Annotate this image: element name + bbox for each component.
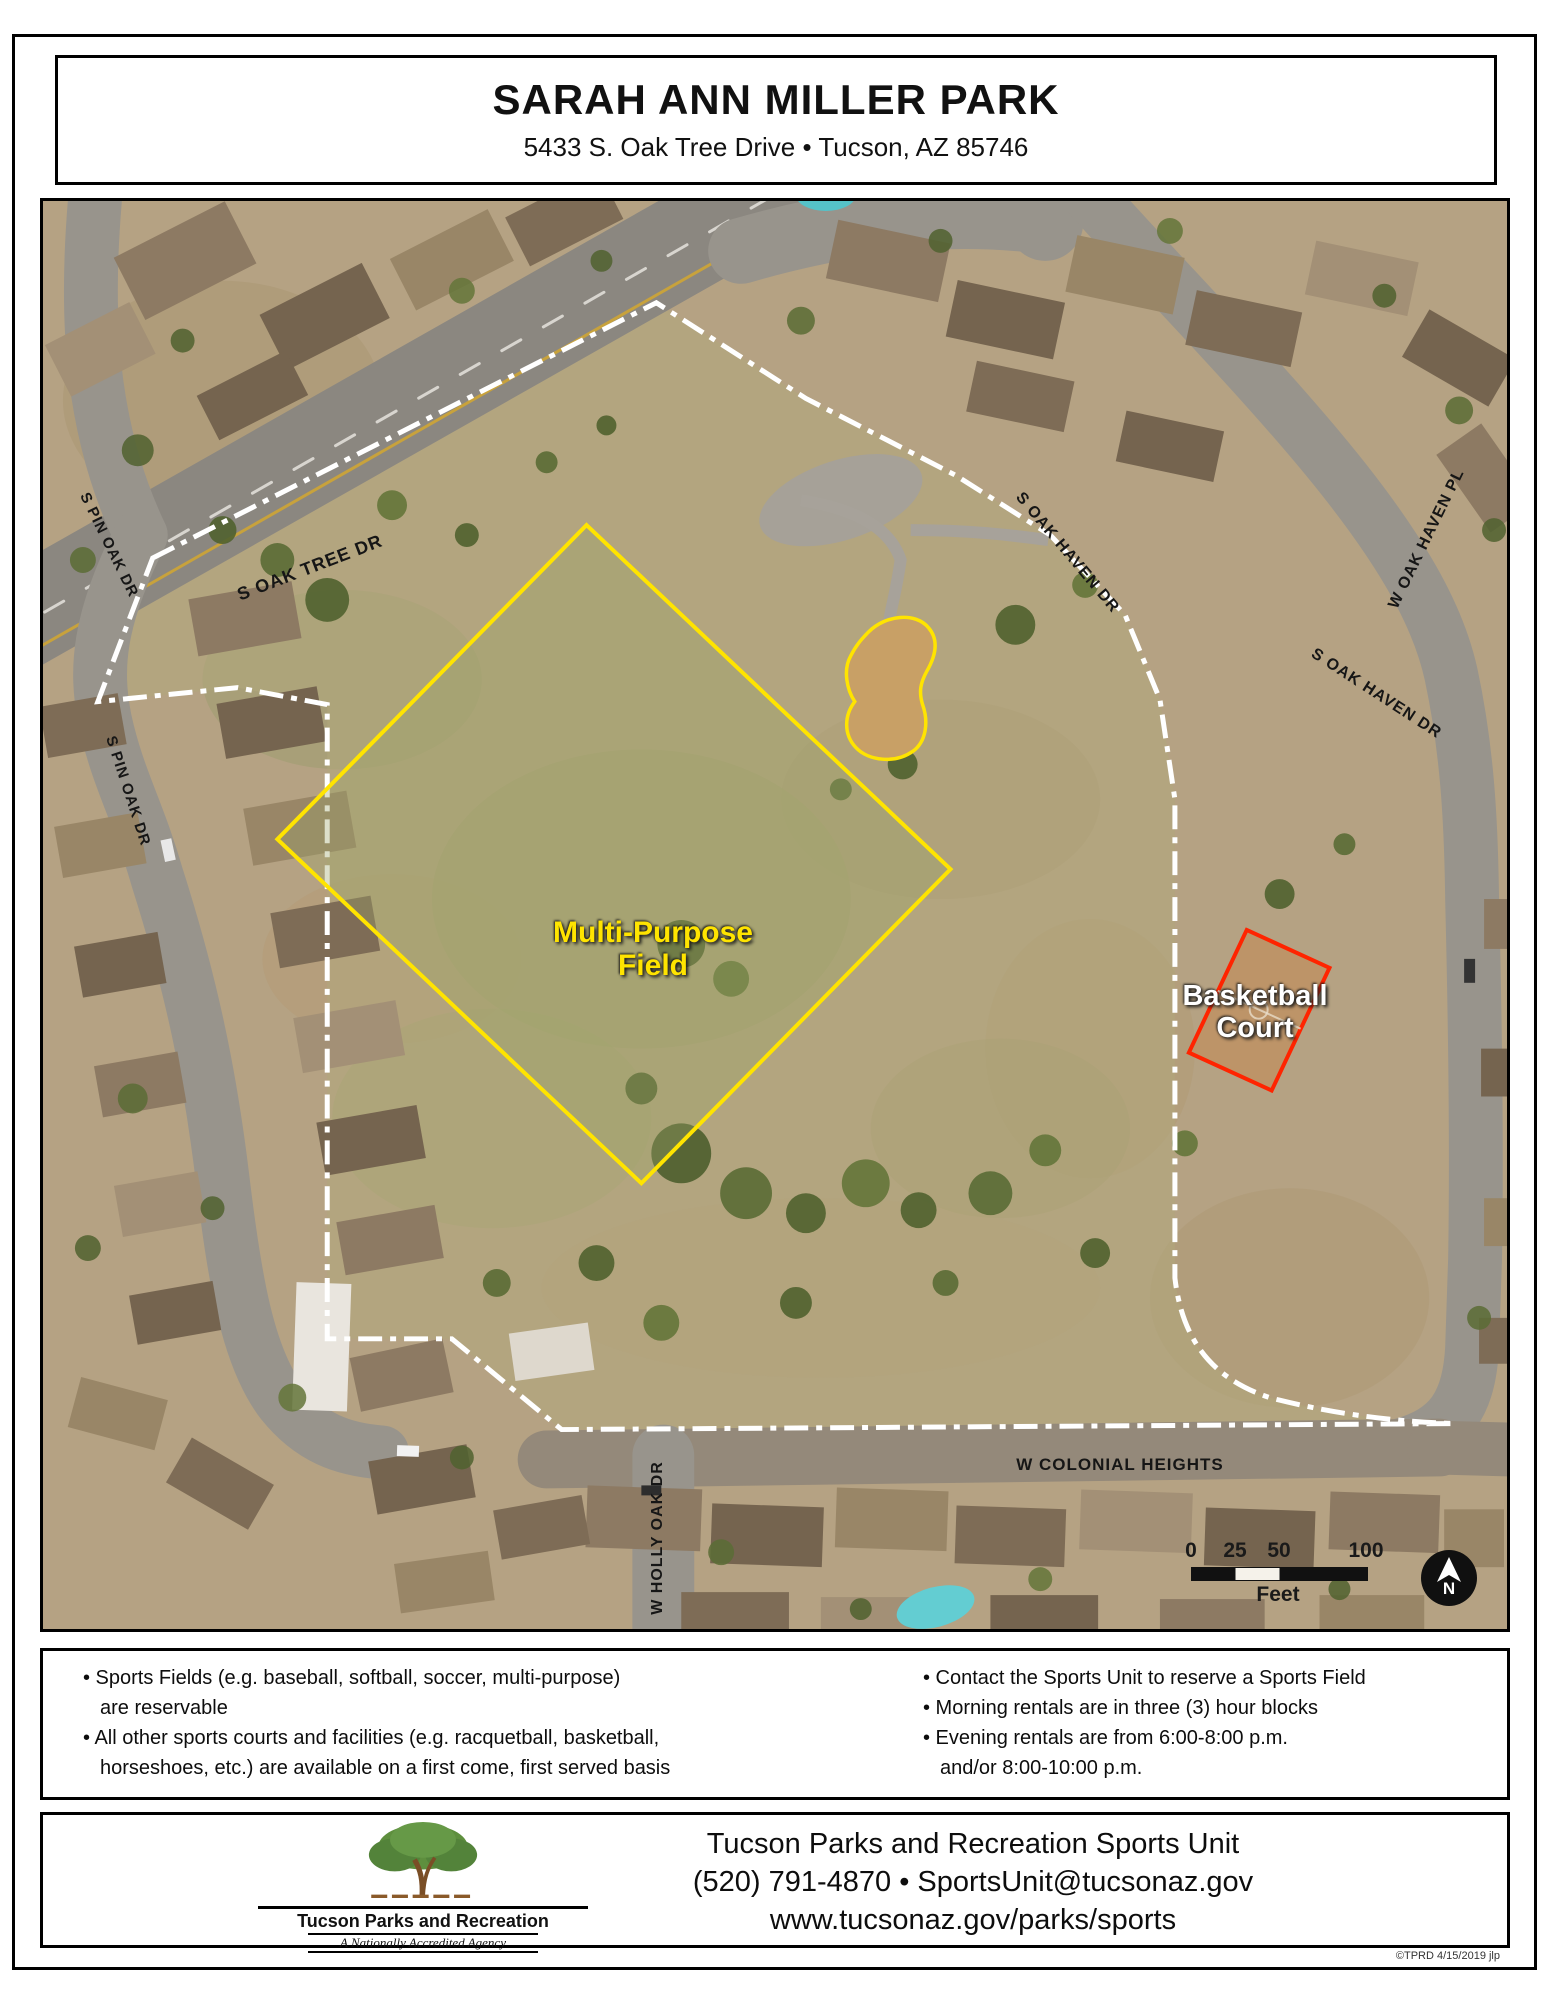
basketball-court-label: Basketball Court (1182, 981, 1327, 1045)
tucson-parks-logo: Tucson Parks and Recreation A Nationally… (258, 1821, 588, 1953)
aerial-photo (43, 201, 1507, 1629)
scale-unit-label: Feet (1256, 1583, 1299, 1607)
phone-and-email: (520) 791-4870 • SportsUnit@tucsonaz.gov (603, 1863, 1343, 1901)
multi-purpose-field-label: Multi-Purpose Field (553, 916, 753, 982)
info-line: and/or 8:00-10:00 p.m. (923, 1753, 1493, 1783)
scale-tick-25: 25 (1223, 1539, 1246, 1563)
aerial-map-inner: S PIN OAK DR S OAK TREE DR W OAK HAVEN P… (43, 201, 1507, 1629)
scale-tick-100: 100 (1348, 1539, 1383, 1563)
info-line: • Evening rentals are from 6:00-8:00 p.m… (923, 1723, 1493, 1753)
scale-bar-graphic (1191, 1567, 1368, 1581)
field-label-line2: Field (553, 949, 753, 982)
oak-tree-icon (273, 1821, 573, 1901)
copyright-credit: ©TPRD 4/15/2019 jlp (1396, 1950, 1500, 1962)
website-url: www.tucsonaz.gov/parks/sports (603, 1901, 1343, 1939)
park-flyer-page: { "header": { "title": "SARAH ANN MILLER… (0, 0, 1546, 2000)
rental-info-box: • Sports Fields (e.g. baseball, softball… (40, 1648, 1510, 1800)
sports-unit-name: Tucson Parks and Recreation Sports Unit (603, 1825, 1343, 1863)
north-arrow: N (1421, 1550, 1477, 1606)
scale-bar: 0 25 50 100 Feet (1181, 1539, 1381, 1609)
info-line: are reservable (83, 1693, 883, 1723)
street-label-w-colonial-heights: W COLONIAL HEIGHTS (1016, 1455, 1224, 1475)
scale-tick-0: 0 (1185, 1539, 1197, 1563)
footer-contact-block: Tucson Parks and Recreation Sports Unit … (603, 1825, 1343, 1939)
aerial-map: S PIN OAK DR S OAK TREE DR W OAK HAVEN P… (40, 198, 1510, 1632)
info-column-left: • Sports Fields (e.g. baseball, softball… (83, 1663, 883, 1783)
street-label-w-holly-oak-dr: W HOLLY OAK DR (649, 1461, 667, 1615)
info-line: • Contact the Sports Unit to reserve a S… (923, 1663, 1493, 1693)
info-line: • Morning rentals are in three (3) hour … (923, 1693, 1493, 1723)
info-line: • All other sports courts and facilities… (83, 1723, 883, 1753)
court-label-line1: Basketball (1182, 981, 1327, 1013)
logo-org-name: Tucson Parks and Recreation (258, 1906, 588, 1932)
scale-tick-50: 50 (1267, 1539, 1290, 1563)
page-title: SARAH ANN MILLER PARK (58, 76, 1494, 124)
logo-tagline: A Nationally Accredited Agency (308, 1933, 538, 1953)
footer: Tucson Parks and Recreation A Nationally… (40, 1812, 1510, 1948)
header: SARAH ANN MILLER PARK 5433 S. Oak Tree D… (55, 55, 1497, 185)
court-label-line2: Court (1182, 1013, 1327, 1045)
info-line: • Sports Fields (e.g. baseball, softball… (83, 1663, 883, 1693)
info-line: horseshoes, etc.) are available on a fir… (83, 1753, 883, 1783)
info-column-right: • Contact the Sports Unit to reserve a S… (923, 1663, 1493, 1783)
field-label-line1: Multi-Purpose (553, 916, 753, 949)
park-address: 5433 S. Oak Tree Drive • Tucson, AZ 8574… (58, 132, 1494, 163)
north-letter: N (1443, 1579, 1455, 1599)
